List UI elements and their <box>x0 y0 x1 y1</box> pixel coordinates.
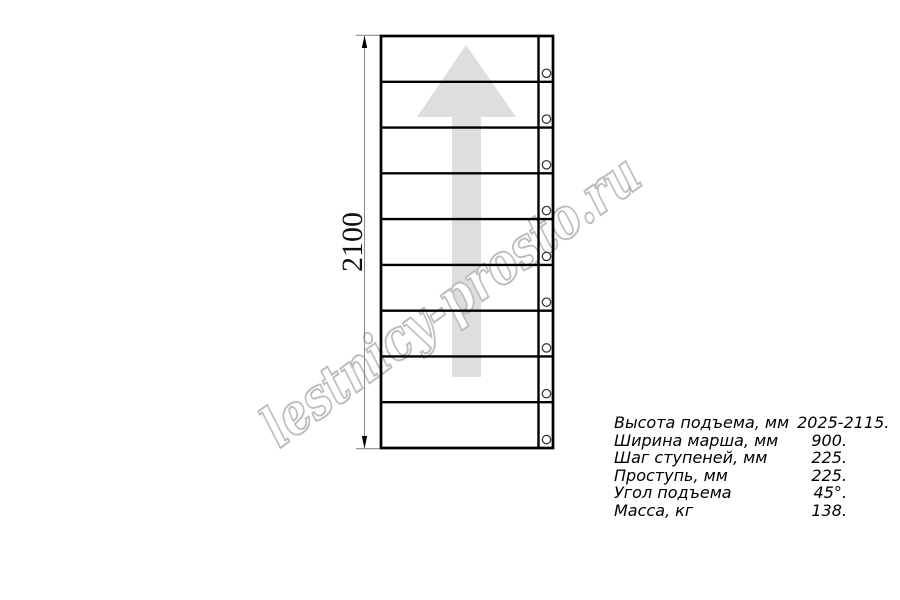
spec-value: 45°. <box>806 484 847 502</box>
mount-hole <box>542 206 550 214</box>
mount-hole <box>542 161 550 169</box>
dimension-height-label: 2100 <box>336 212 369 272</box>
dimension-arrowhead-up <box>362 36 367 49</box>
spec-label: Ширина марша, мм <box>614 432 778 450</box>
spec-label: Шаг ступеней, мм <box>614 449 767 467</box>
spec-row: Ширина марша, мм 900. <box>614 432 847 450</box>
watermark-text: lestnicy-prosto.ru <box>249 141 653 460</box>
spec-label: Проступь, мм <box>614 467 728 485</box>
spec-label: Масса, кг <box>614 502 693 520</box>
spec-label: Угол подъема <box>614 484 732 502</box>
spec-row: Высота подъема, мм 2025-2115. <box>614 414 847 432</box>
mount-hole <box>542 252 550 260</box>
mount-hole <box>542 69 550 77</box>
spec-table: Высота подъема, мм 2025-2115. Ширина мар… <box>614 414 847 520</box>
spec-value: 2025-2115. <box>789 414 889 432</box>
spec-value: 225. <box>803 467 847 485</box>
spec-row: Проступь, мм 225. <box>614 467 847 485</box>
mount-hole <box>542 115 550 123</box>
mount-hole <box>542 390 550 398</box>
mount-hole <box>542 298 550 306</box>
spec-value: 138. <box>803 502 847 520</box>
spec-label: Высота подъема, мм <box>614 414 789 432</box>
spec-value: 225. <box>803 449 847 467</box>
mount-holes <box>542 69 550 444</box>
spec-row: Шаг ступеней, мм 225. <box>614 449 847 467</box>
spec-row: Масса, кг 138. <box>614 502 847 520</box>
spec-row: Угол подъема 45°. <box>614 484 847 502</box>
spec-value: 900. <box>803 432 847 450</box>
dimension-arrowhead-down <box>362 436 367 449</box>
mount-hole <box>542 344 550 352</box>
mount-hole <box>542 435 550 443</box>
